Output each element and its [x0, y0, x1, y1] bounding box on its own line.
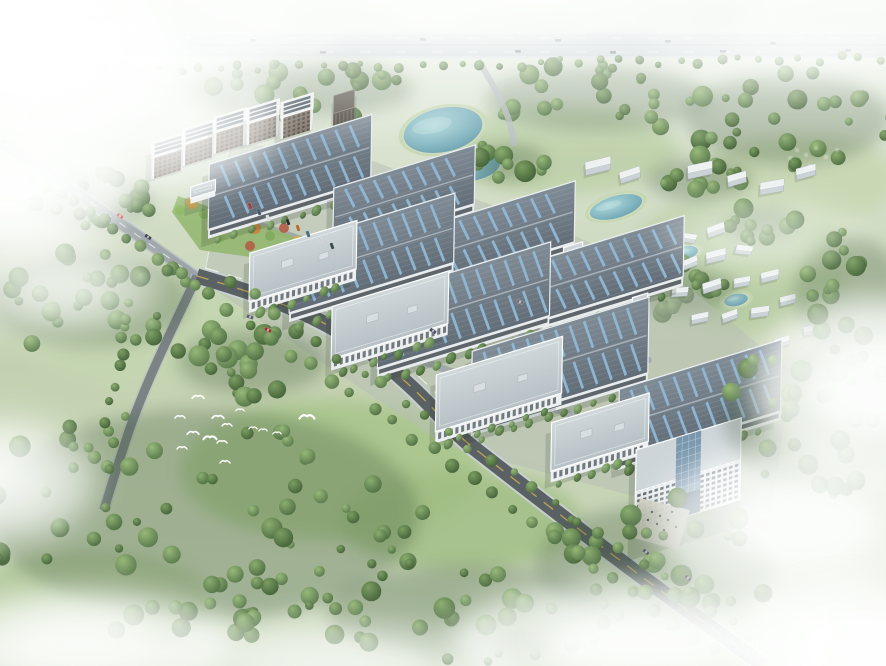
aerial-rendering-stage	[0, 0, 886, 666]
scene-svg	[0, 0, 886, 666]
atmosphere-veil	[0, 0, 886, 666]
atmospheric-haze	[0, 0, 886, 666]
